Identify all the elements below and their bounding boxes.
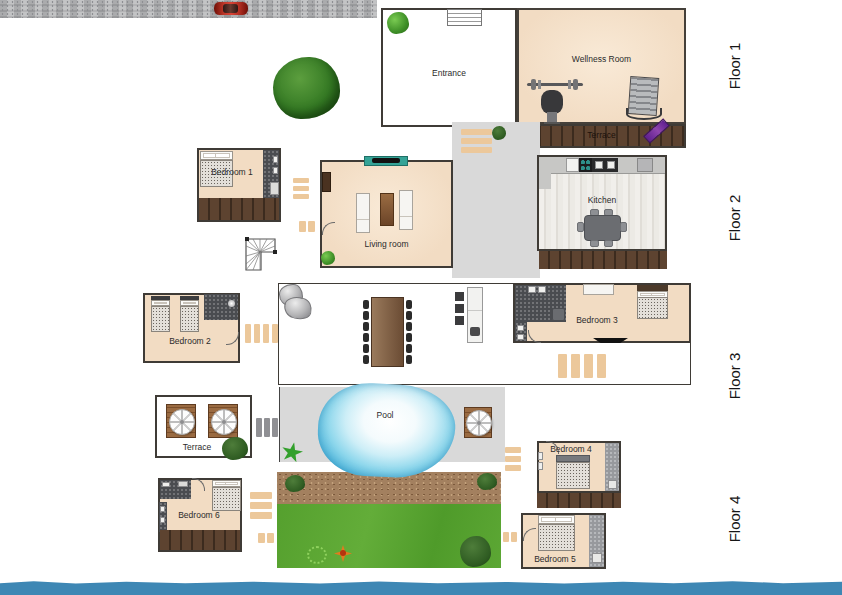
- connector-step: [461, 129, 492, 135]
- bedroom1-label: Bedroom 1: [199, 167, 265, 177]
- bedroom6-bath-tub: [178, 481, 188, 487]
- entrance-bush: [387, 12, 409, 34]
- stairs-bar-gray: [272, 418, 278, 437]
- flower-ring: [307, 546, 327, 564]
- terrace-parasol: [211, 409, 237, 435]
- terrace-parasol: [169, 409, 195, 435]
- benchpress-plate-left2: [538, 80, 541, 89]
- stairs-bar: [293, 178, 309, 183]
- garden-tree: [460, 536, 491, 567]
- kitchen-chair: [620, 222, 627, 232]
- bedroom1-bath-shower: [270, 182, 279, 195]
- kitchen-label: Kitchen: [539, 195, 665, 205]
- dining-chair: [363, 344, 369, 353]
- connector-step: [461, 147, 492, 153]
- stairs-bar: [250, 492, 272, 499]
- grill-box: [455, 292, 464, 301]
- entrance-stairs: [447, 9, 482, 26]
- fridge: [637, 158, 653, 172]
- stairs-bar-gray: [256, 418, 262, 437]
- floorplan-canvas: Entrance Wellness Room Terrace Bedroom 1: [0, 0, 842, 595]
- bedroom6-bath-sink: [162, 482, 170, 487]
- bedroom3-sofa: [583, 284, 614, 295]
- bedroom5-bed: [538, 524, 575, 551]
- stairs-step: [299, 221, 306, 232]
- stairs-bar: [250, 512, 272, 519]
- stairs-bar: [272, 324, 278, 343]
- benchpress-plate-right: [573, 79, 578, 90]
- floor1-label: Floor 1: [726, 36, 744, 96]
- dining-chair: [406, 300, 412, 309]
- stairs-bar: [584, 354, 593, 378]
- bedroom2-label: Bedroom 2: [145, 336, 235, 346]
- stairs-bar: [558, 354, 567, 378]
- sofa-right: [399, 190, 413, 230]
- bedroom1-bath-sink: [273, 156, 278, 163]
- connector-bush: [492, 126, 506, 140]
- bedroom6-deck: [160, 530, 240, 550]
- outdoor-sink: [470, 327, 480, 336]
- dining-chair: [363, 300, 369, 309]
- long-dining-table: [371, 297, 404, 367]
- gym-chair-base: [626, 108, 662, 120]
- bedroom2-bed2: [180, 306, 199, 332]
- benchpress-plate-left: [531, 79, 536, 90]
- grill-box: [455, 304, 464, 313]
- dining-chair: [363, 355, 369, 364]
- tv: [372, 158, 400, 163]
- benchpress-bench: [541, 90, 563, 114]
- floor3-label: Floor 3: [726, 346, 744, 406]
- flower-orange-center: [340, 550, 346, 556]
- dining-chair: [363, 333, 369, 342]
- floor4-label: Floor 4: [726, 489, 744, 549]
- car-cabin: [223, 4, 238, 13]
- terrace-floor4-label: Terrace: [157, 442, 237, 452]
- stairs-bar: [250, 502, 272, 509]
- road: [0, 0, 377, 18]
- stairs-bar: [505, 465, 521, 471]
- dining-chair: [363, 311, 369, 320]
- stove: [579, 158, 592, 172]
- bedroom6-bed-pillows: [212, 480, 241, 487]
- dining-chair: [406, 355, 412, 364]
- bedroom4-bath-shower: [608, 480, 617, 489]
- stairs-bar: [263, 324, 269, 343]
- bedroom3-bath-sink: [538, 286, 546, 293]
- dining-chair: [406, 311, 412, 320]
- stairs-step: [308, 221, 315, 232]
- sink-basin: [607, 161, 615, 169]
- stair-connector: [452, 122, 540, 278]
- sink-basin: [595, 161, 603, 169]
- coffee-table: [380, 193, 394, 226]
- kitchen-chair: [577, 222, 584, 232]
- stairs-step: [503, 532, 509, 542]
- kitchen-deck: [539, 251, 667, 269]
- bedroom2-bathroom: [204, 294, 238, 320]
- bedroom2-bed1: [151, 306, 170, 332]
- stairs-bar: [254, 324, 260, 343]
- pool: [316, 380, 458, 480]
- living-plant: [321, 251, 335, 265]
- pool-parasol: [466, 410, 492, 436]
- living-room-label: Living room: [322, 239, 451, 249]
- benchpress-plate-right2: [568, 80, 571, 89]
- bedroom5-label: Bedroom 5: [523, 554, 587, 564]
- connector-step: [461, 138, 492, 144]
- garden-bush: [477, 473, 497, 490]
- kitchen-cabinet: [566, 158, 579, 172]
- stairs-bar: [597, 354, 606, 378]
- bedroom4-deck: [537, 493, 621, 508]
- stairs-bar: [293, 186, 309, 191]
- bedroom2-bath-light: [228, 300, 235, 307]
- bedroom1-bed-pillows: [200, 151, 233, 160]
- wellness-room-label: Wellness Room: [521, 54, 682, 64]
- bedroom5-bath-shower: [592, 553, 602, 563]
- garden-bush: [285, 475, 305, 492]
- floor2-label: Floor 2: [726, 188, 744, 248]
- spiral-staircase: [243, 236, 279, 273]
- stairs-bar: [505, 456, 521, 462]
- grill-box: [455, 316, 464, 325]
- bedroom1-deck: [199, 198, 279, 220]
- bedroom6-label: Bedroom 6: [160, 510, 238, 520]
- stairs-step: [511, 532, 517, 542]
- stairs-bar: [571, 354, 580, 378]
- bedroom4-dresser: [556, 455, 590, 462]
- kitchen-chair: [590, 240, 599, 247]
- stairs-step: [258, 533, 265, 543]
- bedroom4-label: Bedroom 4: [539, 444, 603, 454]
- entrance-label: Entrance: [383, 68, 515, 78]
- kitchen-chair: [604, 240, 613, 247]
- water: [0, 576, 842, 595]
- bedroom6-bed: [212, 487, 241, 511]
- stairs-bar-gray: [264, 418, 270, 437]
- bedroom3-bath-sink: [528, 286, 536, 293]
- bedroom5-bed-pillows: [538, 515, 575, 524]
- dining-chair: [406, 344, 412, 353]
- pool-label: Pool: [350, 410, 420, 420]
- bedroom3-label: Bedroom 3: [547, 315, 647, 325]
- stairs-bar: [245, 324, 251, 343]
- bedroom1-bath-toilet: [273, 167, 278, 174]
- tree: [273, 57, 340, 119]
- bedroom3-wc-fixture: [517, 325, 524, 331]
- stairs-step: [267, 533, 274, 543]
- bedroom4-fixture: [538, 462, 543, 470]
- dining-chair: [406, 322, 412, 331]
- sofa-left: [356, 193, 370, 233]
- terrace-floor1-label: Terrace: [521, 130, 682, 140]
- bedroom3-wc-fixture: [517, 334, 524, 340]
- stairs-bar: [293, 194, 309, 199]
- dining-chair: [406, 333, 412, 342]
- bedroom4-bed: [556, 462, 590, 489]
- living-cabinet: [322, 172, 331, 192]
- kitchen-table: [584, 215, 621, 241]
- dining-chair: [363, 322, 369, 331]
- stairs-bar: [505, 447, 521, 453]
- kitchen-counter-left: [539, 173, 551, 189]
